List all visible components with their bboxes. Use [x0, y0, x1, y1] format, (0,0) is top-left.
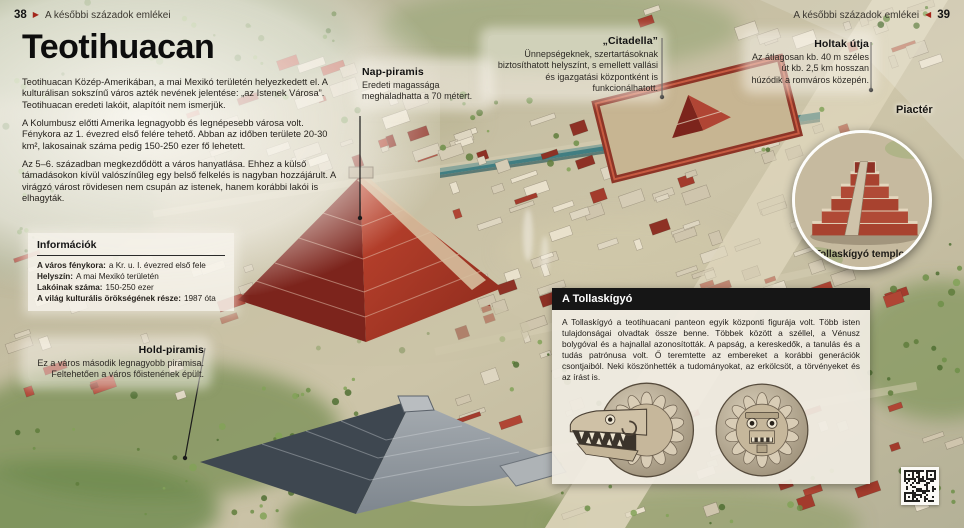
inset-temple-illustration	[795, 133, 929, 267]
page-header-right-title: A későbbi századok emlékei	[793, 10, 919, 21]
info-value: 1987 óta	[184, 294, 216, 303]
info-row: A város fénykora:a Kr. u. I. évezred els…	[37, 260, 225, 271]
label-marketplace: Piactér	[896, 104, 933, 116]
page-header-right: A későbbi századok emlékei ◀ 39	[793, 9, 950, 21]
info-value: a Kr. u. I. évezred első fele	[109, 261, 206, 270]
article: Teotihuacan Teotihuacan Közép-Amerikában…	[22, 28, 344, 211]
feature-box-title: A Tollaskígyó	[552, 288, 870, 310]
back-arrow-icon: ◀	[925, 11, 931, 19]
info-label: A város fénykora:	[37, 261, 106, 270]
info-box-title: Információk	[37, 239, 225, 256]
forward-arrow-icon: ▶	[33, 11, 39, 19]
magnifier-inset-feathered-serpent-temple: A Tollaskígyó temploma	[792, 130, 932, 270]
page-header-left: 38 ▶ A későbbi századok emlékei	[14, 9, 171, 21]
callout-title: Nap-piramis	[362, 66, 486, 78]
feature-box-text: A Tollaskígyó a teotihuacani panteon egy…	[562, 317, 860, 383]
callout-text: Ez a város második legnagyobb piramisa. …	[28, 358, 204, 381]
info-value: A mai Mexikó területén	[76, 272, 159, 281]
article-paragraph: Teotihuacan Közép-Amerikában, a mai Mexi…	[22, 77, 344, 111]
info-box: Információk A város fénykora:a Kr. u. I.…	[28, 233, 234, 311]
callout-text: Ünnepségeknek, szertartásoknak biztosíth…	[488, 49, 658, 94]
info-row: Helyszín:A mai Mexikó területén	[37, 271, 225, 282]
page-header-left-title: A későbbi századok emlékei	[45, 10, 171, 21]
info-label: A világ kulturális örökségének része:	[37, 294, 181, 303]
callout-text: Eredeti magassága meghaladhatta a 70 mét…	[362, 80, 486, 103]
feature-box-body: A Tollaskígyó a teotihuacani panteon egy…	[552, 310, 870, 484]
info-label: Helyszín:	[37, 272, 73, 281]
page-number-right: 39	[937, 9, 950, 21]
info-value: 150-250 ezer	[106, 283, 154, 292]
info-row: Lakóinak száma:150-250 ezer	[37, 282, 225, 293]
callout-title: Holtak útja	[750, 38, 869, 50]
qr-code	[901, 467, 939, 505]
callout-citadel: „Citadella” Ünnepségeknek, szertartásokn…	[488, 35, 658, 94]
info-row: A világ kulturális örökségének része:198…	[37, 293, 225, 304]
callout-text: Az átlagosan kb. 40 m széles út kb. 2,5 …	[750, 52, 869, 86]
page-title: Teotihuacan	[22, 28, 344, 67]
callout-sun-pyramid: Nap-piramis Eredeti magassága meghaladha…	[362, 66, 486, 103]
callout-avenue-of-the-dead: Holtak útja Az átlagosan kb. 40 m széles…	[750, 38, 869, 86]
callout-title: „Citadella”	[488, 35, 658, 47]
article-paragraph: A Kolumbusz előtti Amerika legnagyobb és…	[22, 118, 344, 152]
page-number-left: 38	[14, 9, 27, 21]
serpent-head-carving-profile	[558, 378, 704, 482]
feature-box-feathered-serpent: A Tollaskígyó A Tollaskígyó a teotihuaca…	[552, 288, 870, 484]
book-spread: 38 ▶ A későbbi századok emlékei A később…	[0, 0, 964, 528]
article-paragraph: Az 5–6. században megkezdődött a város h…	[22, 159, 344, 204]
callout-moon-pyramid: Hold-piramis Ez a város második legnagyo…	[28, 344, 204, 381]
serpent-head-carving-frontal	[712, 380, 812, 480]
callout-title: Hold-piramis	[28, 344, 204, 356]
inset-caption: A Tollaskígyó temploma	[795, 249, 929, 261]
info-label: Lakóinak száma:	[37, 283, 103, 292]
